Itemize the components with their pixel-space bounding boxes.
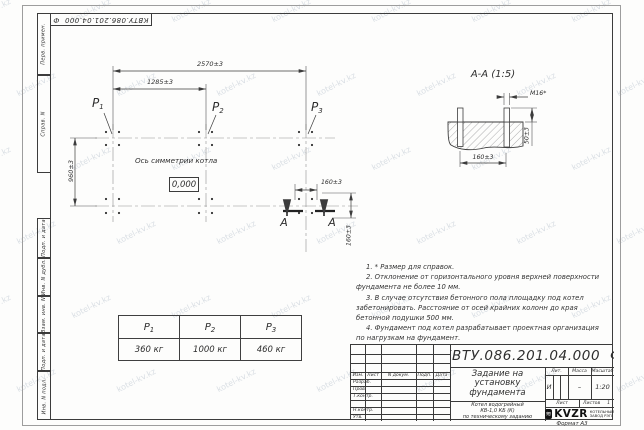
row-prov: Пров. [351, 386, 381, 393]
note-4: 4. Фундамент под котел разрабатывает про… [356, 323, 606, 343]
bolt-thread-label: М16* [530, 90, 546, 97]
mass-value: – [568, 375, 591, 399]
section-cut-marks [283, 202, 335, 216]
drawing-sheet: kotel-kv.kzkotel-kv.kzkotel-kv.kzkotel-k… [0, 0, 644, 430]
technical-notes: 1. * Размер для справок. 2. Отклонение о… [356, 262, 606, 344]
doc-subtitle: Котел водогрейный КВ-1,0 КБ (К) по техни… [450, 401, 545, 421]
scale-label: Масштаб [591, 367, 614, 375]
load-point-label-p1: P1 [92, 96, 104, 110]
load-table: P1 P2 P3 360 кг 1000 кг 460 кг [118, 315, 302, 361]
col-data: Дата [433, 372, 450, 379]
anchor-bolt-right [504, 108, 510, 122]
anchor-bolt-embedded-right [504, 122, 510, 147]
load-table-header-row: P1 P2 P3 [119, 316, 302, 339]
section-letter-right: А [324, 216, 340, 229]
kvzr-logo-icon: ≋ [545, 409, 552, 419]
doc-number: КВТУ.086.201.04.000 Ф [450, 345, 614, 367]
col-list: Лист [365, 372, 381, 379]
dim-depth: 960±3 [67, 151, 75, 191]
sheets-cell: Листов 1 [579, 399, 614, 407]
load-value-p1: 360 кг [119, 339, 180, 361]
elevation-mark: 0,000 [169, 177, 199, 192]
boiler-symmetry-axis-label: Ось симметрии котла [135, 156, 213, 165]
section-view-title: А-А (1:5) [462, 69, 524, 80]
kvzr-logo-text: KVZR [554, 408, 588, 420]
row-razrab: Разраб. [351, 379, 381, 386]
load-table-header-p2: P2 [180, 316, 241, 339]
row-nkontr: Н.контр. [351, 407, 381, 414]
scale-value: 1:20 [591, 375, 614, 399]
dim-offset-x: 160±3 [321, 179, 342, 186]
anchor-bolt-dots [105, 131, 313, 214]
note-1: 1. * Размер для справок. [356, 262, 606, 272]
load-table-header-p1: P1 [119, 316, 180, 339]
note-3: 3. В случае отсутствия бетонного пола пл… [356, 293, 606, 324]
row-utv: Утв. [351, 414, 381, 421]
sheet-label: Лист [545, 399, 579, 407]
sheets-label: Листов [583, 401, 600, 406]
lit-value: И [545, 375, 553, 399]
title-block: Изм. Лист N докум. Подп. Дата Разраб. Пр… [350, 344, 613, 420]
company-name: КОТЕЛЬНЫЙ ЗАВОД РЭП [590, 410, 614, 418]
lit-label: Лит. [545, 367, 568, 375]
format-label: Формат А3 [540, 421, 604, 427]
col-podp: Подп. [416, 372, 433, 379]
p-label-leaders [104, 113, 316, 134]
load-point-label-p2: P2 [212, 100, 224, 114]
dim-bolt-spacing: 160±3 [462, 154, 504, 161]
dim-bolt-height: 50±3 [524, 114, 531, 158]
load-value-p2: 1000 кг [180, 339, 241, 361]
mass-label: Масса [568, 367, 591, 375]
company-cell: ≋ KVZR КОТЕЛЬНЫЙ ЗАВОД РЭП [545, 407, 614, 421]
col-izm: Изм. [351, 372, 365, 379]
doc-title: Задание на установку фундамента [450, 367, 545, 401]
row-tkontr: Т.контр. [351, 393, 381, 400]
load-table-header-p3: P3 [241, 316, 302, 339]
section-letter-left: А [276, 216, 292, 229]
load-value-p3: 460 кг [241, 339, 302, 361]
dimension-lines [75, 71, 351, 218]
anchor-bolt-embedded-left [458, 122, 464, 147]
dim-offset-y: 160±3 [346, 215, 353, 257]
plan-centerlines [95, 124, 358, 252]
dim-half-width: 1285±3 [130, 78, 190, 86]
load-point-label-p3: P3 [311, 100, 323, 114]
note-2: 2. Отклонение от горизонтального уровня … [356, 272, 606, 292]
load-table-value-row: 360 кг 1000 кг 460 кг [119, 339, 302, 361]
sheets-value: 1 [607, 401, 610, 406]
dim-total-width: 2570±3 [180, 60, 240, 68]
col-docnum: N докум. [381, 372, 416, 379]
section-detail-block [448, 108, 523, 150]
anchor-bolt-left [458, 108, 464, 122]
